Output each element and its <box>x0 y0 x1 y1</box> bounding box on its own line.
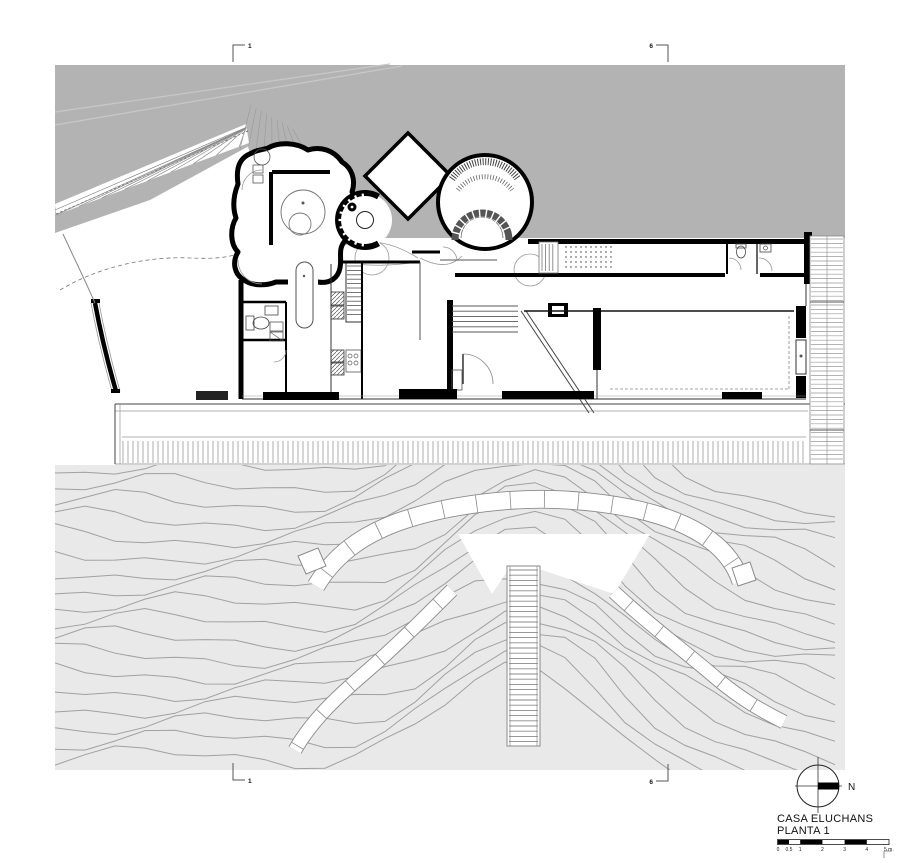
deck-dot <box>575 251 576 252</box>
garden-stair <box>507 566 540 746</box>
scale-tick: 0 <box>777 847 780 853</box>
deck-dot <box>585 261 586 262</box>
deck-dot <box>570 266 571 267</box>
spiral-tread <box>363 229 365 246</box>
deck-dot <box>565 256 566 257</box>
section-label: 6 <box>649 779 653 786</box>
kitchen-island <box>296 262 313 328</box>
deck-dot <box>595 256 596 257</box>
deck-dot <box>610 256 611 257</box>
deck-dot <box>590 256 591 257</box>
plan-sheet: 1 6 1 6 N CASA ELUCHANS PLANTA 1 0 0.5 1… <box>0 0 900 863</box>
deck-dot <box>580 261 581 262</box>
section-label: 1 <box>248 43 252 50</box>
deck-dot <box>575 246 576 247</box>
deck-dot <box>570 261 571 262</box>
deck-dot <box>600 246 601 247</box>
sheet-title: PLANTA 1 <box>777 825 830 837</box>
deck-dot <box>605 261 606 262</box>
deck-dot <box>575 261 576 262</box>
spiral-stair <box>338 193 392 247</box>
deck-dot <box>605 246 606 247</box>
fan-joint <box>479 208 480 218</box>
spiral-tread <box>363 194 365 211</box>
deck-dot <box>580 246 581 247</box>
deck-dot <box>575 256 576 257</box>
scale-tick: 1 <box>799 847 802 853</box>
deck-dot <box>580 256 581 257</box>
deck-dot <box>600 251 601 252</box>
deck-dot <box>610 266 611 267</box>
floor-plan-drawing: 1 6 1 6 N CASA ELUCHANS PLANTA 1 0 0.5 1… <box>0 0 900 863</box>
north-label: N <box>848 782 855 793</box>
deck-dot <box>565 246 566 247</box>
scale-tick: 5 m. <box>884 847 894 853</box>
deck-dot <box>580 251 581 252</box>
deck-dot <box>585 266 586 267</box>
section-label: 6 <box>649 43 653 50</box>
deck-dot <box>565 266 566 267</box>
east-stair-strip <box>810 236 844 464</box>
deck-dot <box>595 251 596 252</box>
deck-dot <box>570 246 571 247</box>
deck-dot <box>605 266 606 267</box>
deck-dot <box>610 261 611 262</box>
deck-dot <box>570 251 571 252</box>
deck-dot <box>580 266 581 267</box>
deck-dot <box>610 246 611 247</box>
cabinet <box>331 292 344 305</box>
deck-dot <box>590 246 591 247</box>
scale-tick: 4 <box>865 847 868 853</box>
section-label: 1 <box>248 778 252 785</box>
stone-drum <box>438 155 532 249</box>
deck-dot <box>590 261 591 262</box>
deck-dot <box>600 261 601 262</box>
deck-dot <box>565 251 566 252</box>
deck-dot <box>600 266 601 267</box>
deck-dot <box>585 256 586 257</box>
scale-tick: 0.5 <box>786 847 793 853</box>
deck-dot <box>585 251 586 252</box>
deck-dot <box>605 251 606 252</box>
deck-dot <box>590 251 591 252</box>
deck-dot <box>590 266 591 267</box>
deck-dot <box>585 246 586 247</box>
deck-dot <box>595 266 596 267</box>
deck-dot <box>575 266 576 267</box>
deck-dot <box>610 251 611 252</box>
scale-tick: 3 <box>843 847 846 853</box>
deck-dot <box>600 256 601 257</box>
deck-dot <box>565 261 566 262</box>
deck-dot <box>595 261 596 262</box>
deck-dot <box>605 256 606 257</box>
deck-dot <box>570 256 571 257</box>
project-title: CASA ELUCHANS <box>777 813 873 825</box>
deck-dot <box>595 246 596 247</box>
scale-tick: 2 <box>821 847 824 853</box>
